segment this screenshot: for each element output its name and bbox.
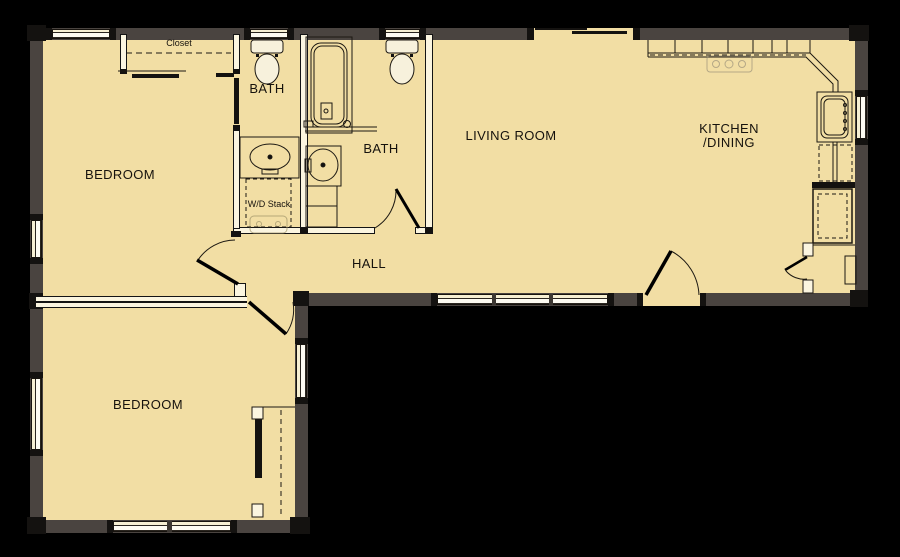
bathtub-icon bbox=[304, 37, 377, 133]
fixtures-layer bbox=[0, 0, 900, 557]
label-kitchen-line2: /DINING bbox=[664, 136, 794, 150]
kitchen-closet bbox=[785, 243, 856, 293]
label-bath1: BATH bbox=[237, 81, 297, 96]
door-bedroom1 bbox=[197, 240, 238, 284]
label-closet: Closet bbox=[149, 38, 209, 48]
door-bath2 bbox=[375, 189, 419, 228]
closet2-lines bbox=[252, 407, 295, 518]
cooktop-icon bbox=[707, 56, 752, 72]
label-bedroom2: BEDROOM bbox=[83, 397, 213, 412]
label-kitchen-dining: KITCHEN /DINING bbox=[664, 122, 794, 150]
label-bedroom1: BEDROOM bbox=[55, 167, 185, 182]
closet1-lines bbox=[118, 53, 231, 71]
label-living-room: LIVING ROOM bbox=[441, 128, 581, 143]
refrigerator-icon bbox=[813, 189, 852, 243]
kitchen-sink-icon bbox=[817, 92, 852, 142]
label-hall: HALL bbox=[334, 256, 404, 271]
washer-dryer-icon bbox=[250, 216, 287, 233]
door-bedroom2 bbox=[249, 302, 294, 334]
floor-plan: BEDROOM BATH BATH LIVING ROOM KITCHEN /D… bbox=[0, 0, 900, 557]
toilet-icon bbox=[251, 40, 283, 84]
label-bath2: BATH bbox=[351, 141, 411, 156]
wall-stub bbox=[812, 182, 855, 188]
toilet-icon bbox=[386, 40, 418, 84]
door-entry bbox=[646, 251, 699, 295]
label-kitchen-line1: KITCHEN bbox=[664, 122, 794, 136]
vanity-sink-icon bbox=[305, 146, 341, 227]
vanity-sink-icon bbox=[240, 137, 299, 178]
label-wd-stack: W/D Stack bbox=[239, 199, 299, 209]
